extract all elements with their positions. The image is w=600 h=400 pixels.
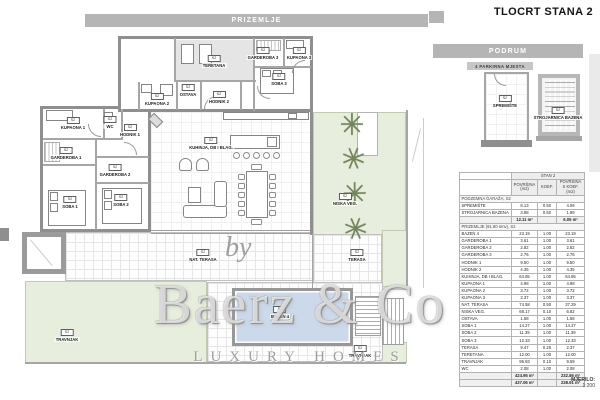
dining-chair [238, 183, 245, 189]
interior-wall [138, 82, 140, 110]
area-cell: 64.85 [512, 273, 538, 280]
kitchen-sink [288, 113, 297, 119]
room-cell: GARDEROBA 3 [460, 252, 512, 259]
room-label-kupaona2: S2KUPAONA 2 [144, 93, 170, 106]
area-coef-cell: 2.82 [557, 245, 585, 252]
interior-wall [95, 140, 97, 230]
dining-chair [251, 219, 262, 225]
room-label-terasa: S2TERASA [347, 249, 366, 262]
lawn-area [25, 281, 207, 363]
unit-tag: S2 [551, 107, 564, 114]
room-name: SPREMIŠTE [492, 103, 518, 108]
area-cell: 2.76 [512, 252, 538, 259]
room-label-bazen: S2BAZEN 4 [270, 306, 290, 319]
bar-stool [263, 152, 270, 159]
room-label-travnjak2: S2TRAVNJAK [348, 345, 373, 358]
room-cell: OSTAVA [460, 316, 512, 323]
coef-cell: 0.10 [538, 358, 557, 365]
room-name: HODNIK 2 [208, 99, 230, 104]
room-label-teretana: S2TERETANA [202, 55, 227, 68]
unit-tag: S2 [273, 73, 286, 80]
room-cell: WC [460, 365, 512, 372]
basement-wall [484, 72, 486, 142]
area-coef-cell: 2.08 [557, 365, 585, 372]
col-header-coef: KOEF. [538, 180, 557, 195]
area-cell: 12.33 [512, 337, 538, 344]
room-label-travnjak1: S2TRAVNJAK [55, 329, 80, 342]
unit-tag: S2 [351, 249, 364, 256]
room-label-soba1: S2SOBA 1 [61, 196, 78, 209]
interior-wall [240, 82, 242, 110]
basement-wall [527, 72, 529, 142]
area-coef-cell: 12.33 [557, 337, 585, 344]
basement-slab [481, 140, 532, 147]
area-coef-cell: 1.58 [557, 316, 585, 323]
unit-tag: S2 [182, 84, 195, 91]
coef-cell: 1.00 [538, 266, 557, 273]
subtotal-coef [538, 372, 557, 379]
room-cell: NAT. TERASA [460, 301, 512, 308]
empty-cell [460, 216, 512, 223]
room-cell: SPREMIŠTE [460, 202, 512, 209]
room-name: SOBA 1 [61, 204, 78, 209]
area-cell: 3.98 [512, 209, 538, 216]
interior-wall [174, 38, 176, 80]
area-cell: 9.50 [512, 259, 538, 266]
room-cell: KUPAONA 2 [460, 287, 512, 294]
door-swing [292, 60, 305, 73]
area-cell: 4.98 [512, 280, 538, 287]
coef-cell: 1.00 [538, 245, 557, 252]
outer-wall [40, 106, 43, 232]
plant-icon: ✳ [335, 111, 369, 145]
room-cell: KUPAONA 3 [460, 294, 512, 301]
unit-tag: S2 [212, 91, 225, 98]
coef-cell: 1.00 [538, 259, 557, 266]
area-cell: 8.13 [512, 202, 538, 209]
room-cell: NISKA VEG. [460, 309, 512, 316]
bar-stool [233, 152, 240, 159]
dining-chair [251, 164, 262, 170]
room-label-garderoba3: S2GARDEROBA 3 [247, 47, 280, 60]
coef-cell: 1.00 [538, 351, 557, 358]
outer-wall [40, 106, 121, 109]
corner-cell [460, 173, 512, 180]
room-cell: GARDEROBA 1 [460, 238, 512, 245]
area-cell: 14.27 [512, 323, 538, 330]
col-header-area: POVRŠINA (m2) [512, 180, 538, 195]
room-name: TERETANA [202, 63, 227, 68]
pillow [104, 201, 112, 210]
area-cell: 11.39 [512, 330, 538, 337]
room-cell: TERETANA [460, 351, 512, 358]
area-cell: 23.19 [512, 231, 538, 238]
area-cell: 12.00 [512, 351, 538, 358]
room-label-kuhinja: S2KUHINJA, DB I BLAG. [188, 137, 234, 150]
area-coef-cell: 4.06 [557, 202, 585, 209]
room-cell: KUHINJA, DB I BLAG. [460, 273, 512, 280]
unit-tag: S2 [66, 117, 79, 124]
area-coef-cell: 3.37 [557, 294, 585, 301]
room-name: OSTAVA [179, 92, 198, 97]
pool-steps [355, 296, 381, 336]
dining-chair [269, 210, 276, 216]
room-name: HODNIK 1 [119, 132, 141, 137]
area-coef-cell: 4.35 [557, 266, 585, 273]
room-label-natterasa: S2NAT. TERASA [188, 249, 217, 262]
area-coef-cell: 6.82 [557, 309, 585, 316]
unit-tag: S2 [123, 124, 136, 131]
coef-cell: 1.00 [538, 273, 557, 280]
unit-tag: S2 [273, 306, 286, 313]
dining-chair [269, 192, 276, 198]
area-coef-cell: 2.76 [557, 252, 585, 259]
coef-cell: 1.00 [538, 238, 557, 245]
area-cell: 3.61 [512, 238, 538, 245]
room-label-hodnik2: S2HODNIK 2 [208, 91, 230, 104]
room-cell: BAZEN 4 [460, 231, 512, 238]
area-coef-cell: 64.85 [557, 273, 585, 280]
area-coef-cell: 9.50 [557, 259, 585, 266]
coef-cell: 1.00 [538, 330, 557, 337]
section-header: PRIZEMLJE (91.80 mnv), S2 [460, 223, 585, 230]
section-header: PODZEMNA GARAŽA, S2 [460, 195, 585, 202]
unit-tag: S2 [115, 194, 128, 201]
room-name: WC [104, 124, 117, 129]
bar-stool [243, 152, 250, 159]
room-cell: TRAVNJAK [460, 358, 512, 365]
cooktop [267, 137, 277, 147]
room-name: GARDEROBA 2 [99, 172, 132, 177]
dining-chair [269, 183, 276, 189]
coef-cell: 1.00 [538, 294, 557, 301]
room-cell: SOBA 1 [460, 323, 512, 330]
coef-cell: 0.10 [538, 309, 557, 316]
glass-wall [151, 230, 311, 231]
dining-chair [269, 201, 276, 207]
interior-wall [283, 38, 285, 68]
floor-plan-page: TLOCRT STANA 2 PRIZEMLJE PODRUM 4 PARKIR… [0, 0, 600, 400]
area-cell: 1.58 [512, 316, 538, 323]
dining-table [246, 171, 268, 218]
swimming-pool [232, 288, 353, 346]
bar-stool [253, 152, 260, 159]
unit-tag: S2 [354, 345, 367, 352]
areas-table: STAN 2POVRŠINA (m2)KOEF.POVRŠINA S KOEF.… [459, 172, 585, 387]
room-label-strojarnica: S2STROJARNICA BAZENA [533, 107, 584, 120]
dining-chair [238, 201, 245, 207]
unit-tag: S2 [59, 147, 72, 154]
room-name: STROJARNICA BAZENA [533, 115, 584, 120]
room-name: GARDEROBA 1 [50, 155, 83, 160]
machinery-hatch [545, 80, 575, 130]
room-label-niskaveg: S2NISKA VEG. [332, 193, 358, 206]
room-name: SOBA 3 [270, 81, 287, 86]
room-cell: STROJARNICA BAZENA [460, 209, 512, 216]
interior-wall [43, 138, 121, 140]
coef-cell: 1.00 [538, 365, 557, 372]
pillow [50, 192, 58, 201]
coef-cell: 1.00 [538, 252, 557, 259]
dining-chair [238, 210, 245, 216]
coef-cell: 1.00 [538, 323, 557, 330]
dining-chair [269, 174, 276, 180]
subtotal-area-coef: 6.05 m² [557, 216, 585, 223]
scale-note: MJERILO: 1:200 [571, 377, 595, 389]
room-name: TRAVNJAK [55, 337, 80, 342]
glass-wall [151, 233, 311, 234]
planter-box [22, 232, 66, 274]
interior-wall [406, 110, 408, 290]
coffee-table [188, 187, 201, 203]
area-cell: 2.82 [512, 245, 538, 252]
armchair [179, 158, 192, 171]
area-coef-cell: 14.27 [557, 323, 585, 330]
unit-tag: S2 [498, 95, 511, 102]
room-cell: SOBA 2 [460, 330, 512, 337]
pool-ladder-hatch [382, 298, 404, 345]
room-name: KUHINJA, DB I BLAG. [188, 145, 234, 150]
interior-wall [25, 362, 406, 364]
unit-tag: S2 [208, 55, 221, 62]
site-boundary-diagonal [412, 128, 421, 161]
pillow [104, 190, 112, 199]
area-cell: 3.37 [512, 294, 538, 301]
subtotal-coef [538, 216, 557, 223]
outer-wall [310, 109, 313, 235]
unit-tag: S2 [64, 196, 77, 203]
room-cell: TERASA [460, 344, 512, 351]
room-name: KUPAONA 1 [60, 125, 86, 130]
area-cell: 68.17 [512, 309, 538, 316]
subtotal-area: 424.95 m² [512, 372, 538, 379]
living-room-floor [151, 112, 310, 230]
areas-table-grid: STAN 2POVRŠINA (m2)KOEF.POVRŠINA S KOEF.… [459, 172, 585, 387]
room-name: NISKA VEG. [332, 201, 358, 206]
basement-wall [484, 72, 529, 74]
area-cell: 74.58 [512, 301, 538, 308]
basement-slab [536, 136, 582, 141]
room-label-garderoba2: S2GARDEROBA 2 [99, 164, 132, 177]
room-name: BAZEN 4 [270, 314, 290, 319]
door-swing [257, 86, 270, 99]
unit-tag: S2 [204, 137, 217, 144]
unit-tag: S2 [338, 193, 351, 200]
coef-cell: 0.50 [538, 301, 557, 308]
coef-cell: 1.00 [538, 337, 557, 344]
green-strip [382, 230, 407, 287]
site-boundary-line [423, 118, 424, 288]
outer-wall [148, 109, 151, 232]
empty-cell [460, 372, 512, 379]
coef-cell: 1.00 [538, 231, 557, 238]
bathroom-fixture [141, 84, 152, 93]
room-label-kupaona3: S2KUPAONA 3 [286, 47, 312, 60]
coef-cell: 0.50 [538, 202, 557, 209]
corner-cell [460, 180, 512, 195]
room-cell: SOBA 3 [460, 337, 512, 344]
area-cell: 4.35 [512, 266, 538, 273]
coef-cell: 1.00 [538, 316, 557, 323]
unit-tag: S2 [197, 249, 210, 256]
room-label-ostava: S2OSTAVA [179, 84, 198, 97]
room-name: NAT. TERASA [188, 257, 217, 262]
room-cell: HODNIK 2 [460, 266, 512, 273]
door-swing [124, 142, 137, 155]
area-coef-cell: 11.39 [557, 330, 585, 337]
col-header-area-coef: POVRŠINA S KOEF. (m2) [557, 180, 585, 195]
room-name: KUPAONA 3 [286, 55, 312, 60]
interior-wall [43, 164, 96, 166]
area-coef-cell: 3.61 [557, 238, 585, 245]
coef-cell: 1.00 [538, 280, 557, 287]
room-cell: HODNIK 1 [460, 259, 512, 266]
page-shading [589, 54, 600, 172]
room-label-hodnik1: S2HODNIK 1 [119, 124, 141, 137]
gym-equipment [181, 44, 194, 64]
interior-wall [174, 80, 256, 82]
area-coef-cell: 9.59 [557, 358, 585, 365]
area-coef-cell: 2.37 [557, 344, 585, 351]
area-coef-cell: 12.00 [557, 351, 585, 358]
interior-wall [97, 156, 149, 158]
room-label-wc: S2WC [104, 116, 117, 129]
interior-wall [97, 182, 149, 184]
area-coef-cell: 1.99 [557, 209, 585, 216]
area-cell: 9.47 [512, 344, 538, 351]
armchair [196, 158, 209, 171]
bar-stool [273, 152, 280, 159]
outer-wall [0, 228, 9, 241]
room-name: GARDEROBA 3 [247, 55, 280, 60]
area-coef-cell: 3.72 [557, 287, 585, 294]
room-label-spremiste: S2SPREMIŠTE [492, 95, 518, 108]
room-name: TRAVNJAK [348, 353, 373, 358]
room-name: SOBA 2 [112, 202, 129, 207]
room-label-kupaona1: S2KUPAONA 1 [60, 117, 86, 130]
unit-tag: S2 [150, 93, 163, 100]
room-label-soba3: S2SOBA 3 [270, 73, 287, 86]
room-name: KUPAONA 2 [144, 101, 170, 106]
door-swing [88, 124, 101, 137]
coef-cell: 0.25 [538, 344, 557, 351]
room-name: TERASA [347, 257, 366, 262]
subtotal-area: 12.11 m² [512, 216, 538, 223]
area-coef-cell: 23.19 [557, 231, 585, 238]
coef-cell: 1.00 [538, 287, 557, 294]
outer-wall [118, 36, 121, 109]
room-cell: GARDEROBA 2 [460, 245, 512, 252]
sofa-chaise [214, 181, 227, 207]
table-title: STAN 2 [512, 173, 585, 180]
coef-cell: 0.50 [538, 209, 557, 216]
pillow [50, 203, 58, 212]
dining-chair [238, 174, 245, 180]
unit-tag: S2 [61, 329, 74, 336]
unit-tag: S2 [256, 47, 269, 54]
dining-chair [238, 192, 245, 198]
area-cell: 95.93 [512, 358, 538, 365]
unit-tag: S2 [104, 116, 117, 123]
room-label-soba2: S2SOBA 2 [112, 194, 129, 207]
grand-total-coef [538, 380, 557, 387]
area-coef-cell: 37.29 [557, 301, 585, 308]
interior-wall [312, 234, 313, 290]
area-cell: 2.08 [512, 365, 538, 372]
room-label-garderoba1: S2GARDEROBA 1 [50, 147, 83, 160]
unit-tag: S2 [292, 47, 305, 54]
scale-value: 1:200 [571, 383, 595, 389]
area-cell: 3.72 [512, 287, 538, 294]
grand-total-area: 437.06 m² [512, 380, 538, 387]
area-coef-cell: 4.98 [557, 280, 585, 287]
interior-wall [176, 82, 178, 110]
room-cell: KUPAONA 1 [460, 280, 512, 287]
unit-tag: S2 [108, 164, 121, 171]
empty-cell [460, 380, 512, 387]
interior-wall [200, 82, 202, 110]
interior-wall [253, 66, 255, 111]
